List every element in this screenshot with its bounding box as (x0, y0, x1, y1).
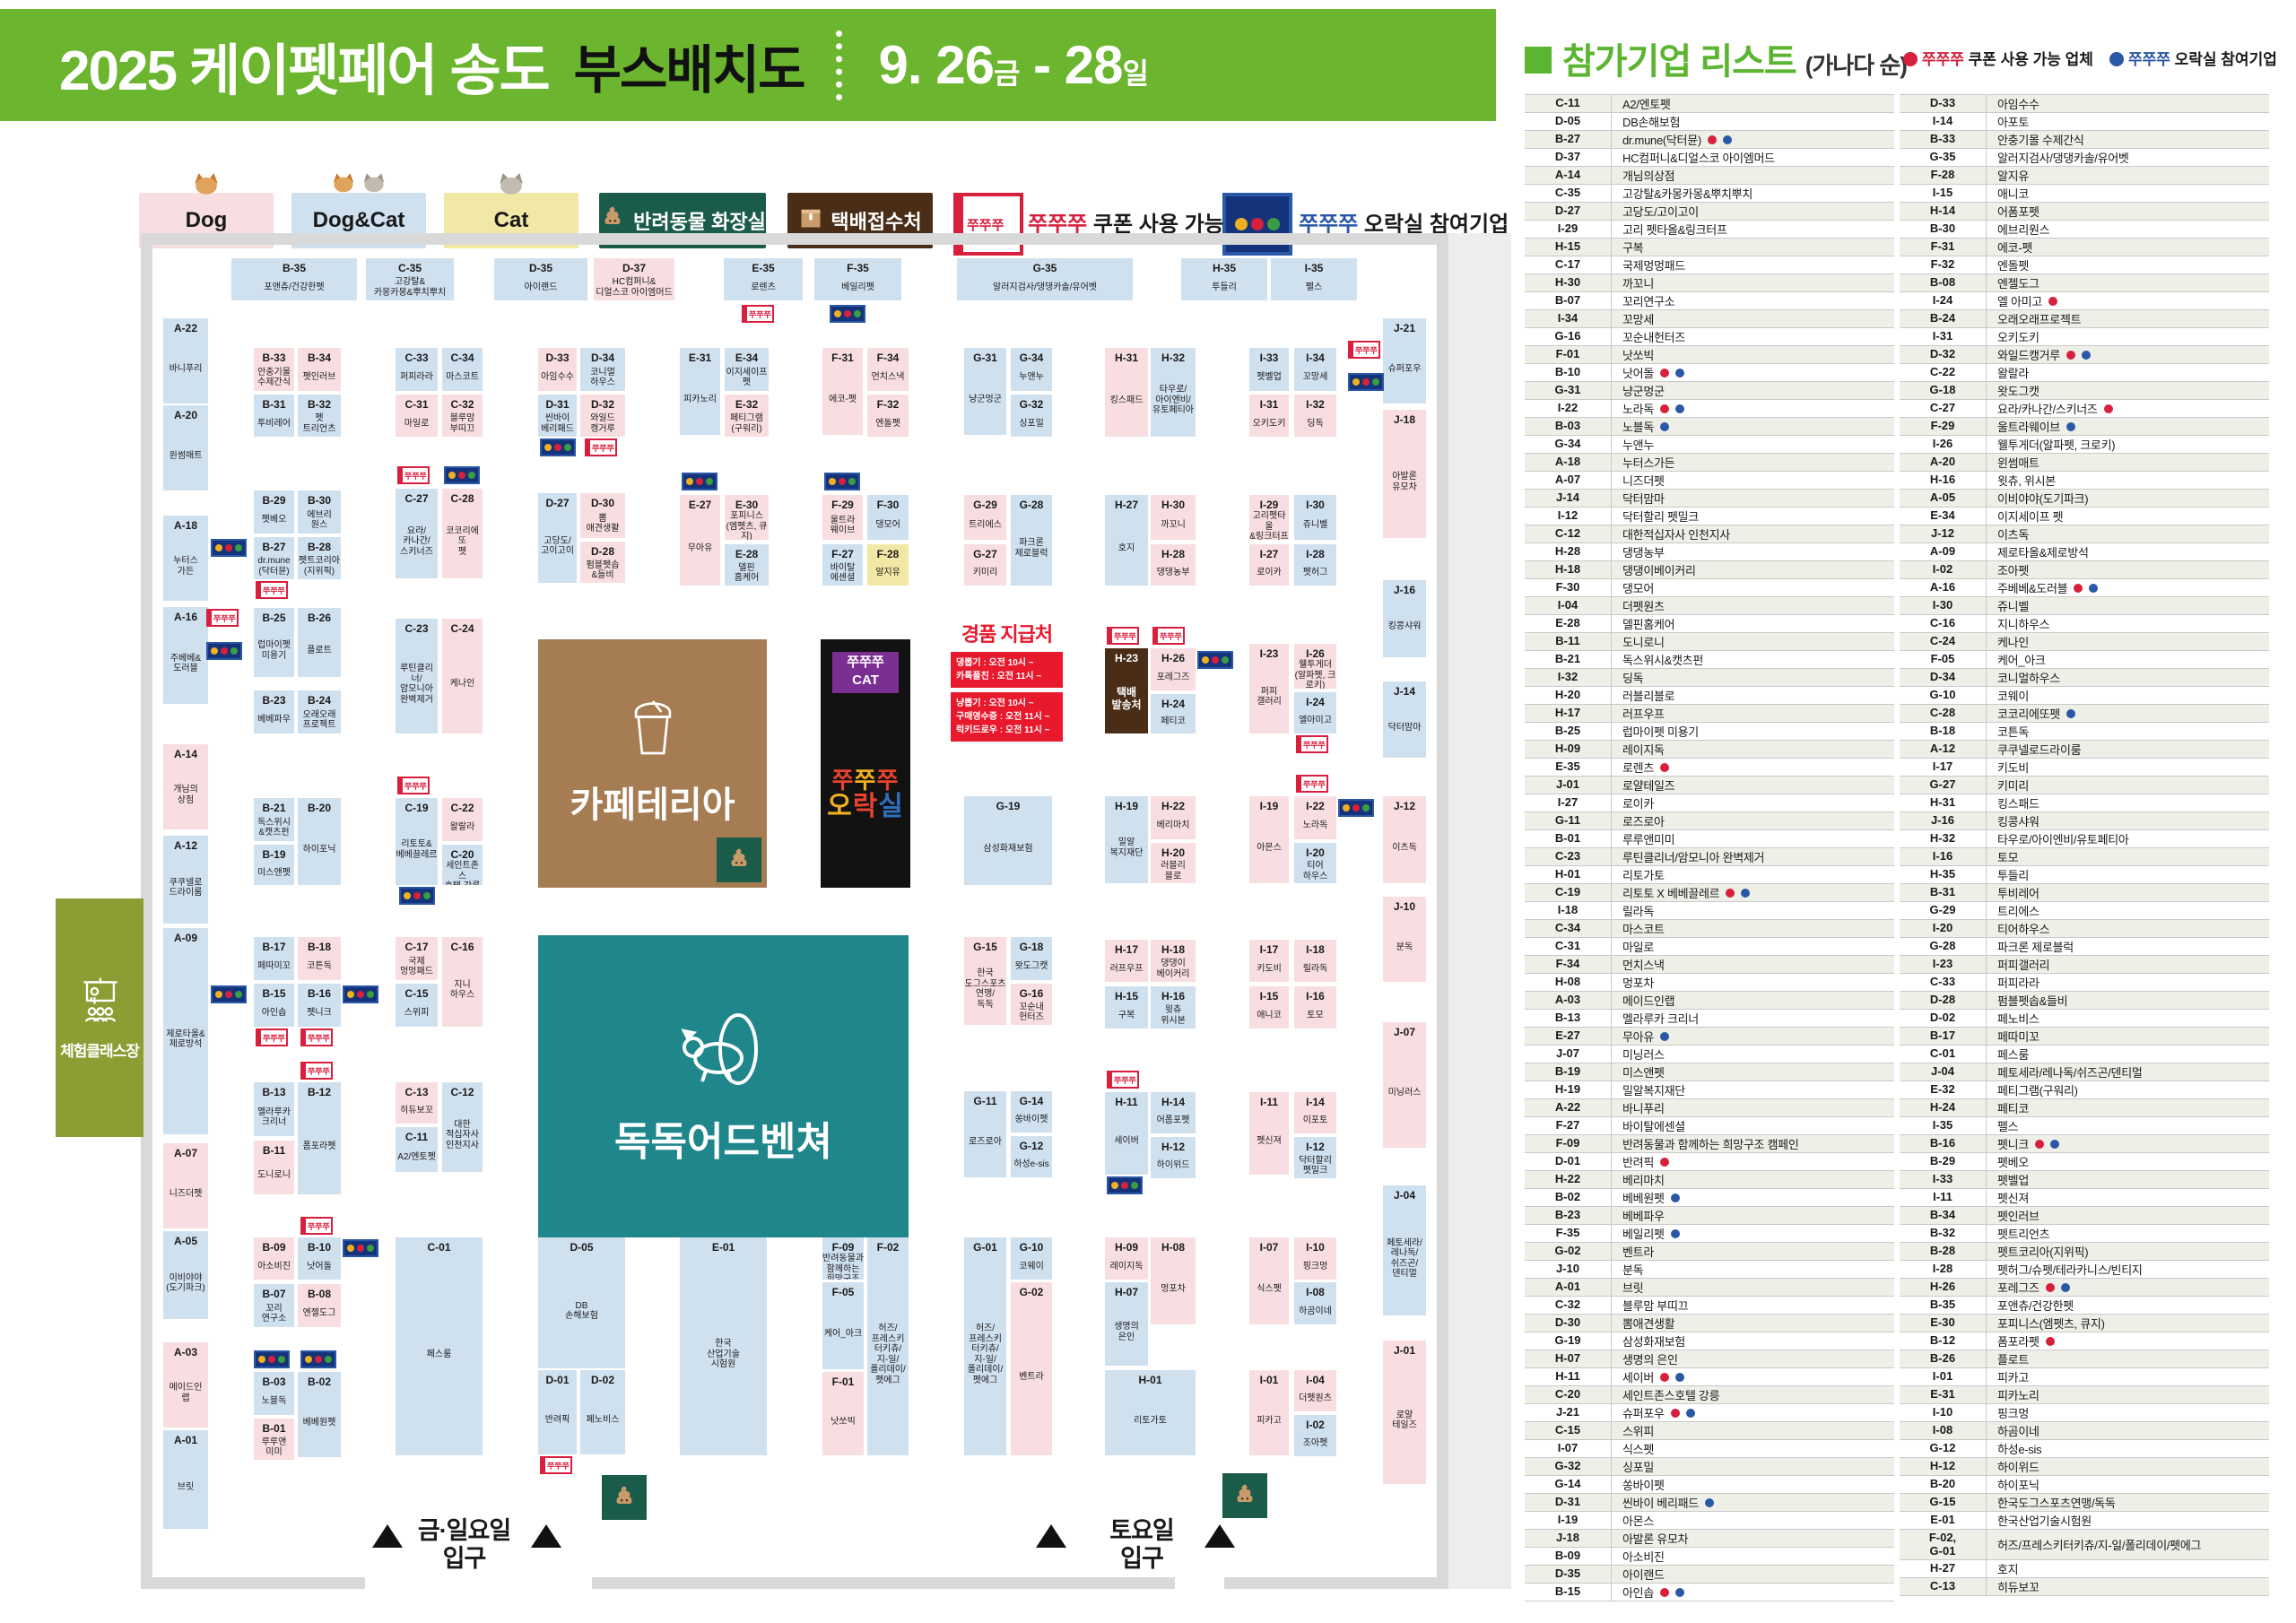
booth-B-23: B-23 베베파우 (254, 690, 294, 733)
entrance-arrow (1036, 1524, 1066, 1548)
company-name: 허즈/프레스키터키츄/지-일/폴리데이/펫에그 (1987, 1536, 2201, 1553)
booth-code: I-18 (1525, 902, 1612, 919)
booth-code: A-03 (174, 1346, 197, 1358)
booth-name: 윗츄 위시본 (1161, 1005, 1186, 1026)
booth-code: E-01 (1900, 1512, 1987, 1529)
booth-name: 핑크멍 (1303, 1262, 1328, 1272)
booth-C-24: C-24 케나인 (442, 619, 483, 733)
booth-code: D-28 (591, 545, 614, 558)
company-row-I-18: I-18릴라독 (1525, 901, 1894, 919)
booth-name: 댕댕이 베이커리 (1157, 959, 1190, 979)
company-name: 애니코 (1987, 185, 2029, 202)
company-row-G-29: G-29트리에스 (1900, 901, 2269, 919)
booth-B-31: B-31 투비레어 (254, 395, 294, 437)
arcade-badge-icon (540, 438, 576, 456)
booth-C-15: C-15 스위피 (396, 984, 438, 1027)
booth-code: D-31 (545, 398, 569, 411)
company-row-H-31: H-31킹스패드 (1900, 794, 2269, 811)
booth-code: B-31 (1900, 884, 1987, 901)
company-name: 개님의상점 (1612, 167, 1674, 184)
booth-code: I-12 (1306, 1141, 1325, 1153)
arcade-badge-icon (343, 985, 378, 1003)
booth-name: 포레그즈 (1157, 673, 1190, 683)
company-name: 펫벨업 (1987, 1171, 2029, 1188)
booth-code: B-02 (1525, 1189, 1612, 1206)
booth-name: 니즈더펫 (170, 1189, 203, 1200)
booth-code: I-34 (1525, 310, 1612, 327)
prize-area: 경품 지급처 댕뽑기 : 오전 10시 ~ 카톡플친 : 오전 11시 ~ 냥뽑… (951, 619, 1063, 742)
booth-code: H-24 (1900, 1099, 1987, 1116)
booth-C-20: C-20 세인트존스 호텔 강릉 (442, 845, 483, 885)
booth-code: E-35 (1525, 759, 1612, 776)
company-name: 분독 (1612, 1261, 1643, 1278)
booth-code: D-28 (1900, 992, 1987, 1009)
booth-name: 퍼피 갤러리 (1257, 687, 1282, 707)
company-row-I-30: I-30쥬니벨 (1900, 596, 2269, 614)
booth-name: 포앤츄/건강한펫 (264, 282, 324, 293)
company-row-F-27: F-27바이탈에센셜 (1525, 1116, 1894, 1134)
arcade-badge-icon (399, 887, 435, 905)
booth-code: G-01 (973, 1241, 997, 1254)
booth-H-23: H-23 택배 발송처 (1105, 648, 1148, 733)
booth-code: C-32 (1525, 1297, 1612, 1314)
company-row-F-01: F-01낫쏘빅 (1525, 345, 1894, 363)
booth-C-34: C-34 마스코트 (442, 348, 483, 391)
booth-name: 먼치스낵 (872, 372, 905, 383)
booth-code: F-28 (877, 548, 900, 560)
company-name: DB손해보험 (1612, 113, 1680, 130)
company-row-D-37: D-37HC컴퍼니&디얼스코 아이엠머드 (1525, 148, 1894, 166)
company-row-H-27: H-27호지 (1900, 1559, 2269, 1577)
booth-code: B-33 (262, 352, 285, 364)
company-name: 국제멍멍패드 (1612, 256, 1685, 273)
booth-code: H-11 (1115, 1096, 1137, 1108)
booth-code: I-01 (1260, 1374, 1279, 1386)
booth-code: D-35 (529, 262, 552, 274)
arcade-dot-icon (2066, 709, 2075, 718)
booth-H-26: H-26 포레그즈 (1151, 648, 1196, 690)
booth-name: 에브리 원스 (307, 510, 332, 531)
company-row-I-12: I-12닥터할리 펫밀크 (1525, 507, 1894, 525)
booth-code: E-27 (1525, 1028, 1612, 1045)
company-row-I-17: I-17키도비 (1900, 758, 2269, 776)
company-row-G-16: G-16꼬순내헌터즈 (1525, 327, 1894, 345)
company-row-B-34: B-34펫인러브 (1900, 1206, 2269, 1224)
booth-code: D-37 (622, 262, 646, 274)
company-name: 아소비진 (1612, 1548, 1665, 1565)
booth-code: B-13 (1525, 1010, 1612, 1027)
booth-D-05: D-05 DB 손해보험 (538, 1237, 625, 1368)
booth-code: G-34 (1020, 352, 1044, 364)
company-name: 쥬니벨 (1987, 597, 2029, 614)
booth-code: J-04 (1394, 1189, 1415, 1202)
entrance-arrow (531, 1524, 561, 1548)
booth-D-32: D-32 와일드 캥거루 (580, 395, 625, 437)
booth-C-13: C-13 히듀보꼬 (396, 1082, 438, 1124)
company-row-B-11: B-11도니로니 (1525, 632, 1894, 650)
booth-code: C-13 (1900, 1578, 1987, 1595)
booth-name: 윈썸매트 (170, 451, 203, 462)
booth-name: 닥터맘마 (1388, 723, 1422, 733)
booth-name: 허즈/ 프레스키 터키츄/ 지-일/ 폴리데이/ 펫에그 (968, 1324, 1004, 1385)
booth-code: B-16 (308, 987, 331, 1000)
booth-code: C-15 (404, 987, 428, 1000)
company-name: 핑크멍 (1987, 1404, 2029, 1421)
company-name: 바니푸리 (1612, 1099, 1665, 1116)
booth-code: C-20 (450, 848, 474, 861)
company-name: 케나인 (1987, 633, 2029, 650)
booth-B-11: B-11 도니로니 (254, 1141, 294, 1194)
booth-name: 코튼독 (307, 961, 332, 972)
adventure-label: 독독어드벤쳐 (614, 1109, 832, 1167)
booth-name: 미스앤펫 (257, 868, 291, 879)
booth-code: I-35 (1305, 262, 1324, 274)
hall-wall-bottom-3 (1224, 1577, 1448, 1589)
booth-code: B-27 (1525, 131, 1612, 148)
company-row-B-01: B-01루루앤미미 (1525, 829, 1894, 847)
company-name: 조아펫 (1987, 561, 2029, 578)
booth-code: B-07 (1525, 292, 1612, 309)
booth-code: D-34 (591, 352, 614, 364)
coupon-dot-icon (2046, 1283, 2055, 1292)
company-name: 펫허그/슈펫/테라카니스/빈티지 (1987, 1261, 2143, 1278)
booth-G-14: G-14 쏭바이펫 (1011, 1091, 1052, 1133)
arcade-badge-icon (206, 642, 242, 660)
booth-name: 구복 (1118, 1011, 1135, 1021)
company-name: 파크론 제로블럭 (1987, 938, 2074, 955)
booth-name: 케나인 (450, 679, 475, 690)
booth-I-08: I-08 하곰이네 (1294, 1282, 1336, 1324)
booth-H-22: H-22 베리마치 (1151, 796, 1196, 839)
company-name: 로즈로아 (1612, 812, 1665, 829)
booth-code: H-28 (1161, 548, 1185, 560)
booth-name: 로이카 (1257, 568, 1282, 578)
booth-H-31: H-31 킹스패드 (1105, 348, 1148, 437)
booth-name: 제로타올& 제로방석 (166, 1029, 204, 1050)
booth-code: A-12 (174, 839, 197, 852)
booth-code: B-24 (308, 694, 331, 707)
booth-code: F-31 (831, 352, 854, 364)
company-name: 댕댕농부 (1612, 543, 1665, 560)
company-name: 페스룸 (1987, 1046, 2029, 1063)
experience-class-area: 체험클래스장 (56, 898, 143, 1137)
booth-name: HC컴퍼니& 디얼스코 아이엠머드 (596, 277, 673, 298)
company-name: 고강탈&카몽카몽&뿌치뿌치 (1612, 185, 1752, 202)
booth-code: H-19 (1115, 800, 1138, 812)
coupon-dot-icon (1660, 404, 1669, 413)
booth-code: H-01 (1138, 1374, 1161, 1386)
booth-name: 울트라 웨이브 (831, 516, 856, 536)
booth-name: 세인트존스 호텔 강릉 (442, 861, 483, 885)
coupon-dot-icon (2066, 351, 2075, 360)
booth-code: H-18 (1161, 943, 1185, 956)
company-name: 낫쏘빅 (1612, 346, 1654, 363)
booth-code: B-23 (262, 694, 285, 707)
company-row-J-14: J-14닥터맘마 (1525, 489, 1894, 507)
booth-code: C-11 (405, 1131, 428, 1143)
coupon-badge-icon: 쭈쭈쭈 (742, 305, 774, 323)
booth-code: B-24 (1900, 310, 1987, 327)
company-row-B-27: B-27dr.mune(닥터뮨) (1525, 130, 1894, 148)
booth-code: J-14 (1394, 685, 1415, 698)
booth-name: 피카고 (1257, 1416, 1282, 1427)
company-name: 하곰이네 (1987, 1422, 2039, 1439)
coupon-badge-icon: 쭈쭈쭈 (1348, 341, 1380, 359)
booth-B-12: B-12 폼포라펫 (298, 1082, 341, 1194)
booth-G-35: G-35 알러지검사/댕댕카솔/유어벳 (957, 258, 1133, 300)
booth-code: I-18 (1306, 943, 1325, 956)
booth-code: C-11 (1525, 95, 1612, 112)
booth-code: I-33 (1260, 352, 1279, 364)
booth-name: 알지유 (875, 568, 900, 578)
company-name: 울트라웨이브 (1987, 418, 2060, 435)
booth-B-20: B-20 하이포닉 (298, 798, 341, 885)
booth-I-27: I-27 로이카 (1249, 544, 1289, 586)
company-name: 레이지독 (1612, 741, 1665, 758)
booth-code: F-30 (877, 499, 900, 511)
booth-G-12: G-12 하성e-sis (1011, 1136, 1052, 1177)
booth-name: 바니푸리 (170, 364, 203, 375)
booth-code: B-26 (1900, 1350, 1987, 1367)
booth-code: C-34 (1525, 920, 1612, 937)
hall-wall-right (1437, 233, 1448, 1589)
booth-name: 펫 트리언츠 (303, 413, 336, 434)
booth-name: 닥터할리 펫밀크 (1299, 1156, 1332, 1176)
booth-B-19: B-19 미스앤펫 (254, 845, 294, 885)
booth-code: I-31 (1900, 328, 1987, 345)
booth-code: B-16 (1900, 1135, 1987, 1152)
coupon-badge-icon: 쭈쭈쭈 (1152, 627, 1185, 645)
company-row-I-02: I-02조아펫 (1900, 560, 2269, 578)
booth-code: C-24 (450, 622, 474, 635)
company-name: 코웨이 (1987, 687, 2029, 704)
booth-code: F-29 (831, 499, 854, 511)
booth-E-34: E-34 이지세이프 펫 (725, 348, 769, 391)
booth-I-14: I-14 이포토 (1294, 1092, 1336, 1133)
arcade-badge-icon (1348, 373, 1384, 391)
booth-I-11: I-11 펫신져 (1249, 1092, 1289, 1175)
company-name: 토모 (1987, 848, 2018, 865)
company-row-F-34: F-34먼치스낵 (1525, 955, 1894, 973)
booth-name: 페티코 (1161, 716, 1186, 727)
prize-box-1: 댕뽑기 : 오전 10시 ~ 카톡플친 : 오전 11시 ~ (951, 652, 1063, 688)
booth-code: I-22 (1525, 400, 1612, 417)
company-name: 안충기몰 수제간식 (1987, 131, 2084, 148)
booth-name: 포피니스 (엠펫츠, 큐지) (725, 511, 769, 540)
booth-name: 에코-펫 (829, 395, 857, 405)
company-row-I-31: I-31오키도키 (1900, 327, 2269, 345)
page-header: 2025 케이펫페어 송도 부스배치도 9. 26금 - 28일 (0, 9, 1496, 121)
booth-code: I-28 (1306, 548, 1325, 560)
booth-A-20: A-20 윈썸매트 (163, 405, 208, 490)
company-name: 고당도/고이고이 (1612, 203, 1699, 220)
booth-code: C-16 (1900, 615, 1987, 632)
company-name: 닥터할리 펫밀크 (1612, 508, 1699, 525)
booth-A-12: A-12 쿠쿠넬로 드라이룸 (163, 836, 208, 924)
booth-code: B-15 (1525, 1584, 1612, 1601)
booth-name: 쏭바이펫 (1015, 1115, 1048, 1125)
booth-code: I-29 (1525, 221, 1612, 238)
booth-J-10: J-10 분독 (1383, 897, 1426, 982)
booth-name: 요라/ 카나간/ 스키너즈 (400, 526, 433, 558)
booth-code: I-23 (1900, 956, 1987, 973)
company-name: 미스앤펫 (1612, 1063, 1665, 1081)
booth-G-11: G-11 로즈로아 (964, 1091, 1006, 1177)
booth-A-14: A-14 개님의 상점 (163, 744, 208, 829)
booth-code: I-01 (1900, 1368, 1987, 1385)
booth-B-30: B-30 에브리 원스 (298, 490, 341, 534)
company-row-B-03: B-03노블독 (1525, 417, 1894, 435)
company-row-E-30: E-30포피니스(엠펫츠, 큐지) (1900, 1314, 2269, 1332)
company-name: 멜라루카 크리너 (1612, 1010, 1699, 1027)
booth-name: 펫신져 (1257, 1136, 1282, 1147)
company-row-H-08: H-08멍포차 (1525, 973, 1894, 991)
booth-code: I-27 (1260, 548, 1279, 560)
booth-C-22: C-22 왈랄라 (442, 798, 483, 841)
company-name: 킹콩샤워 (1987, 812, 2039, 829)
booth-code: C-23 (404, 622, 428, 635)
entrance-fri-sun: 금·일요일 입구 (408, 1517, 520, 1573)
company-row-G-19: G-19삼성화재보험 (1525, 1332, 1894, 1350)
company-name: 마일로 (1612, 938, 1654, 955)
company-name: 윈썸매트 (1987, 454, 2039, 471)
booth-code: A-03 (1525, 992, 1612, 1009)
company-row-G-34: G-34누앤누 (1525, 435, 1894, 453)
booth-code: A-14 (1525, 167, 1612, 184)
booth-name: 누터스 가든 (173, 556, 198, 577)
booth-code: B-25 (262, 612, 285, 624)
booth-code: D-33 (545, 352, 569, 364)
booth-name: 로얄 테일즈 (1392, 1410, 1417, 1431)
booth-B-09: B-09 아소비진 (254, 1237, 294, 1280)
booth-code: H-26 (1161, 652, 1185, 664)
company-name: 왈랄라 (1987, 364, 2029, 381)
booth-name: 폼포라펫 (303, 1141, 336, 1152)
booth-code: B-28 (308, 541, 331, 553)
booth-name: 왈랄라 (450, 822, 475, 833)
company-row-C-33: C-33퍼피라라 (1900, 973, 2269, 991)
company-row-G-31: G-31냥군멍군 (1525, 381, 1894, 399)
booth-code: B-15 (262, 987, 285, 1000)
company-row-B-30: B-30에브리원스 (1900, 220, 2269, 238)
coupon-badge-icon: 쭈쭈쭈 (300, 1062, 333, 1080)
booth-code: J-01 (1394, 1344, 1415, 1357)
booth-code: J-01 (1525, 777, 1612, 794)
booth-name: 반려동물과 함께하는 희망구조 캠페인 (822, 1254, 864, 1280)
booth-name: 아이랜드 (525, 282, 558, 293)
booth-code: A-20 (1900, 454, 1987, 471)
booth-F-05: F-05 케어_아크 (822, 1282, 864, 1369)
company-row-J-12: J-12이츠독 (1900, 525, 2269, 542)
company-row-B-15: B-15아인솝 (1525, 1583, 1894, 1601)
company-name: 퍼피라라 (1987, 974, 2039, 991)
booth-code: G-12 (1900, 1440, 1987, 1457)
company-name: 호지 (1987, 1560, 2018, 1577)
booth-code: G-14 (1020, 1095, 1044, 1107)
booth-F-31: F-31 에코-펫 (822, 348, 863, 435)
booth-code: E-31 (689, 352, 711, 364)
booth-H-07: H-07 생명의 은인 (1105, 1282, 1148, 1366)
booth-name: 대한 적십자사 인천지사 (446, 1120, 479, 1151)
coupon-badge-icon: 쭈쭈쭈 (1296, 775, 1328, 793)
company-name: 하이위드 (1987, 1458, 2039, 1475)
company-row-B-35: B-35포앤츄/건강한펫 (1900, 1296, 2269, 1314)
booth-name: 한국 도그스포츠 연맹/ 독독 (965, 968, 1006, 1010)
booth-code: I-17 (1260, 943, 1279, 956)
company-row-F-28: F-28알지유 (1900, 166, 2269, 184)
company-row-F-35: F-35베일리펫 (1525, 1224, 1894, 1242)
booth-A-07: A-07 니즈더펫 (163, 1143, 208, 1228)
company-name: 케어_아크 (1987, 651, 2046, 668)
booth-name: 리토가토 (1134, 1416, 1167, 1427)
poop-icon (1222, 1473, 1267, 1518)
booth-code: C-31 (1525, 938, 1612, 955)
company-name: 코코리에또펫 (1987, 705, 2060, 722)
booth-I-29: I-29 고리펫타올 &링크터프 (1249, 495, 1289, 540)
booth-name: 릴라독 (1303, 964, 1328, 975)
booth-code: A-22 (174, 322, 197, 334)
booth-name: 펫허그 (1303, 568, 1328, 578)
arcade-label: 쭈쭈쭈오락실 (827, 768, 904, 821)
booth-D-01: D-01 반려픽 (538, 1370, 577, 1454)
booth-B-02: B-02 베베원펫 (298, 1372, 341, 1457)
booth-code: G-14 (1525, 1476, 1612, 1493)
company-row-J-04: J-04페토세라/레나독/쉬즈곤/덴티멀 (1900, 1063, 2269, 1081)
booth-code: H-32 (1161, 352, 1185, 364)
arcade-badge-icon (343, 1239, 378, 1257)
company-name: 베베파우 (1612, 1207, 1665, 1224)
company-name: 펠스 (1987, 1117, 2018, 1134)
booth-code: E-35 (752, 262, 774, 274)
company-name: 한국도그스포츠연맹/독독 (1987, 1494, 2116, 1511)
booth-code: I-26 (1306, 647, 1325, 660)
booth-H-35: H-35 투들리 (1181, 258, 1267, 300)
booth-code: H-08 (1525, 974, 1612, 991)
booth-A-18: A-18 누터스 가든 (163, 516, 208, 601)
dog-cat-icon (330, 171, 387, 193)
booth-D-30: D-30 뽐 애견생활 (580, 493, 625, 538)
booth-A-01: A-01 브릿 (163, 1430, 208, 1529)
booth-H-15: H-15 구복 (1105, 986, 1148, 1028)
company-name: 베베원펫 (1612, 1189, 1665, 1206)
booth-G-10: G-10 코웨이 (1011, 1237, 1052, 1280)
booth-code: B-35 (283, 262, 306, 274)
booth-code: H-14 (1161, 1096, 1185, 1108)
booth-F-35: F-35 베일리펫 (814, 258, 901, 300)
booth-name: 멜라루카 크리너 (257, 1107, 291, 1128)
company-name: 하성e-sis (1987, 1440, 2041, 1457)
arcade-dot-icon (1671, 1229, 1680, 1238)
booth-B-29: B-29 펫베오 (254, 490, 294, 534)
poop-icon (717, 838, 761, 882)
booth-name: 도니로니 (257, 1170, 291, 1181)
booth-name: 국제 멍멍패드 (400, 957, 433, 977)
booth-code: I-07 (1260, 1241, 1279, 1254)
booth-code: E-34 (1900, 508, 1987, 525)
booth-H-09: H-09 레이지독 (1105, 1237, 1148, 1280)
booth-name: 베베원펫 (303, 1418, 336, 1428)
company-name: 주베베&도러블 (1987, 579, 2067, 596)
booth-code: B-18 (1900, 723, 1987, 740)
booth-code: D-34 (1900, 669, 1987, 686)
company-row-I-19: I-19아몬스 (1525, 1511, 1894, 1529)
company-row-F-31: F-31에코-펫 (1900, 238, 2269, 256)
booth-name: 어폼포펫 (1157, 1115, 1190, 1126)
company-row-B-29: B-29펫베오 (1900, 1152, 2269, 1170)
entrance-sat: 토요일 입구 (1097, 1517, 1187, 1573)
booth-name: A2/엔토펫 (397, 1152, 436, 1163)
booth-name: 펫트코리아 (지위픽) (299, 556, 340, 577)
